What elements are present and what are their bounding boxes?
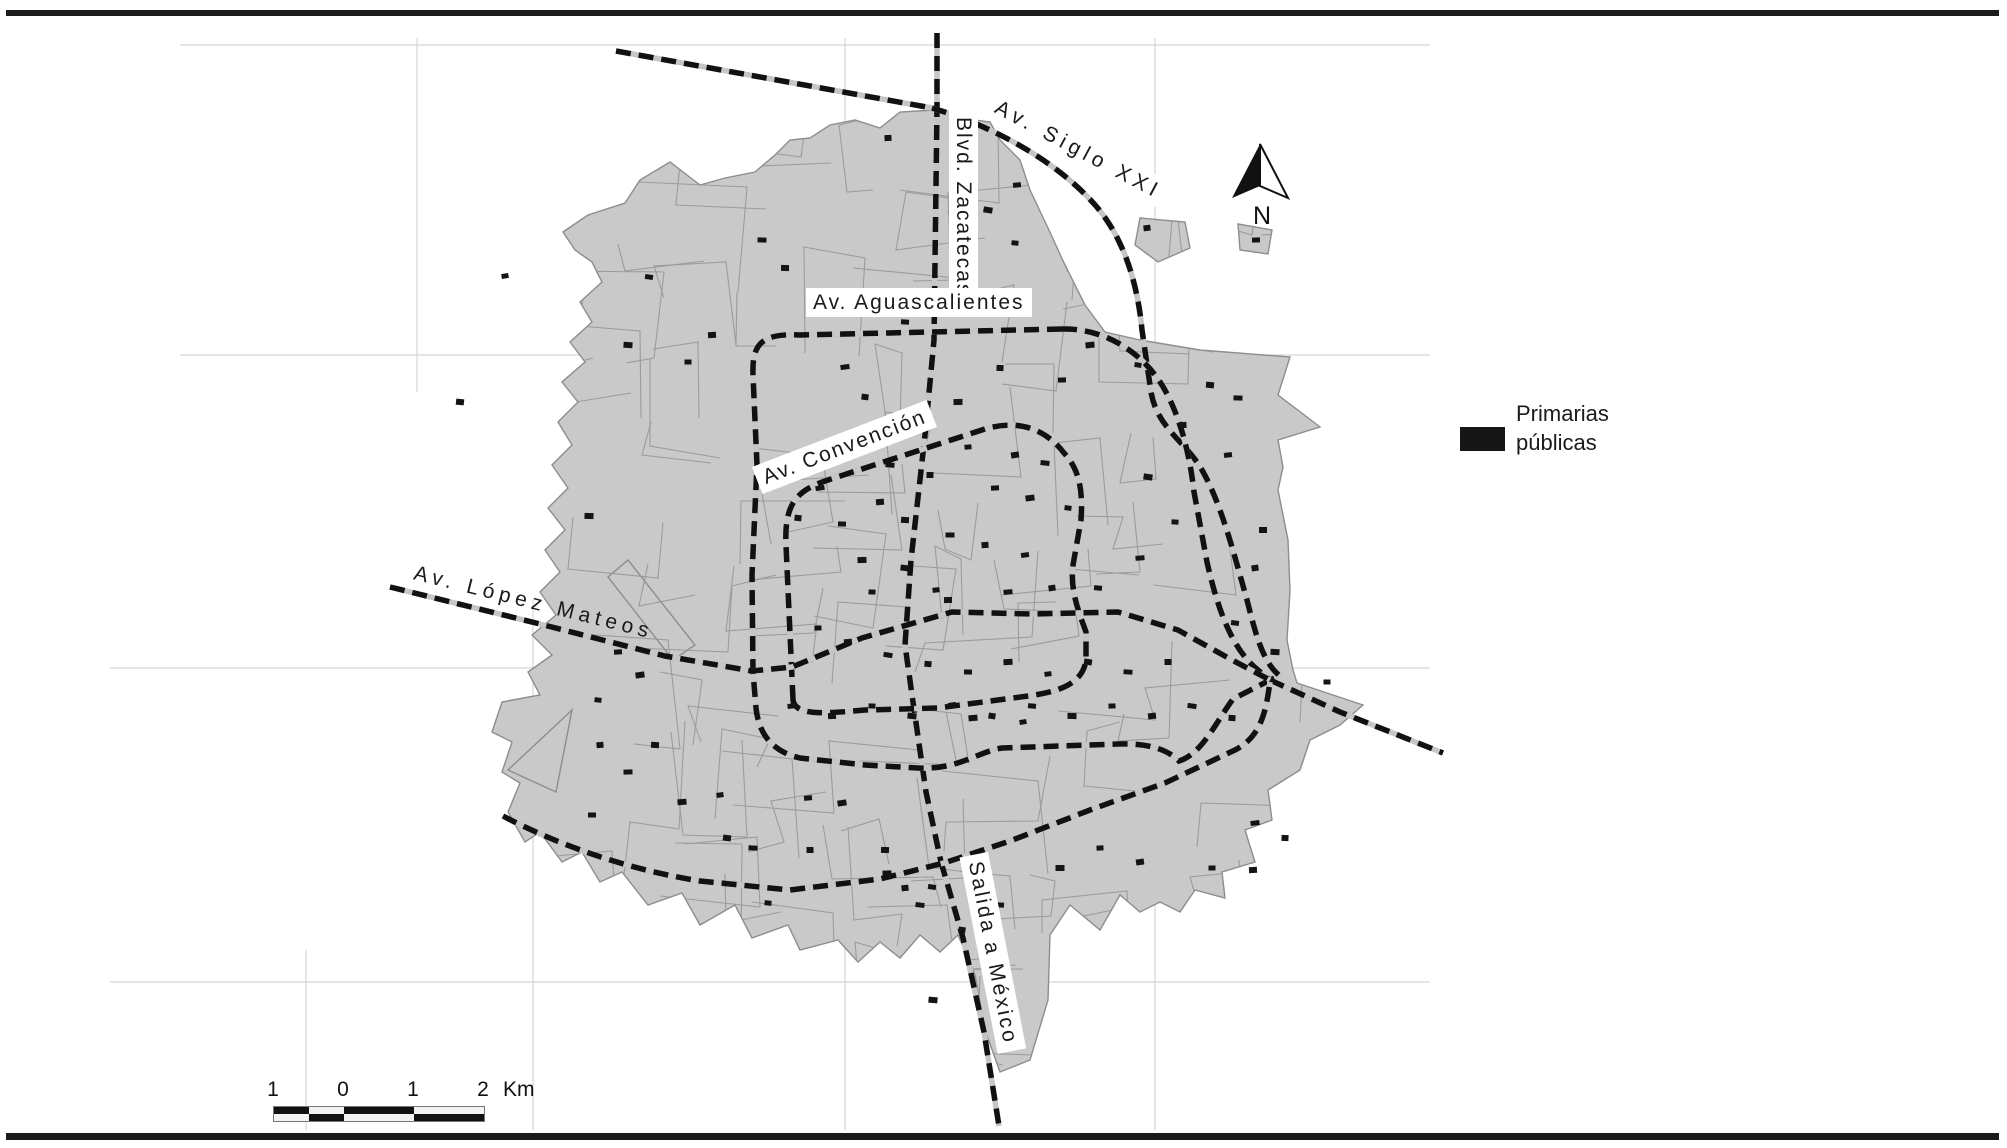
school-marker [596, 742, 603, 749]
school-marker [964, 669, 972, 674]
school-marker [1259, 527, 1267, 533]
road-label-av-aguascalientes: Av. Aguascalientes [806, 288, 1032, 317]
scale-bar-segment [344, 1107, 414, 1114]
school-marker [1003, 589, 1012, 595]
legend-label-line1: Primarias [1516, 399, 1609, 428]
school-marker [861, 394, 869, 401]
school-marker [1233, 395, 1242, 400]
school-marker [1252, 237, 1260, 242]
school-marker [884, 135, 891, 141]
school-marker [828, 713, 836, 719]
school-marker [708, 332, 716, 339]
school-marker [794, 515, 802, 522]
school-marker [651, 742, 659, 748]
school-marker [1228, 715, 1235, 721]
figure: Blvd. Zacatecas Av. Siglo XXI Av. Aguasc… [0, 0, 2007, 1148]
school-marker [814, 625, 821, 630]
school-marker [806, 847, 813, 853]
school-marker [1249, 867, 1257, 873]
scale-bar [273, 1106, 485, 1122]
school-marker [946, 533, 955, 538]
school-marker [1179, 422, 1186, 428]
school-marker [901, 319, 909, 324]
school-marker [1044, 671, 1052, 677]
school-marker [1067, 713, 1076, 719]
school-marker [588, 813, 596, 818]
school-marker [623, 769, 632, 774]
school-marker [857, 557, 866, 563]
school-marker [1058, 377, 1066, 382]
scale-bar-segment [274, 1107, 309, 1114]
school-marker [584, 513, 593, 519]
school-marker [1136, 858, 1145, 865]
urban-area-layer [492, 110, 1363, 1072]
school-marker [1281, 835, 1288, 841]
school-marker [928, 997, 937, 1004]
school-marker [991, 485, 999, 490]
school-marker [764, 900, 771, 906]
school-marker [1085, 342, 1095, 349]
school-marker [1165, 659, 1172, 665]
school-marker [900, 564, 910, 571]
school-marker [1025, 494, 1035, 501]
school-marker [614, 649, 622, 655]
school-marker [748, 845, 757, 850]
school-marker [1123, 669, 1132, 675]
school-marker [926, 472, 933, 478]
legend-swatch-primarias-publicas [1460, 427, 1505, 451]
school-marker [804, 795, 812, 801]
legend-label: Primarias públicas [1516, 399, 1609, 457]
school-marker [944, 597, 952, 603]
school-marker [924, 661, 931, 668]
school-marker [456, 399, 465, 406]
school-marker [881, 847, 889, 853]
scalebar-tick-2: 2 [468, 1078, 498, 1102]
urban-island [1135, 218, 1190, 262]
school-marker [1143, 473, 1153, 480]
school-marker [635, 671, 645, 678]
school-marker [1094, 585, 1102, 591]
school-marker [1011, 240, 1018, 246]
school-marker [1143, 225, 1151, 232]
school-marker [968, 715, 977, 722]
school-marker [1251, 565, 1259, 572]
school-marker [844, 639, 853, 646]
school-marker [882, 870, 891, 875]
school-marker [623, 342, 632, 349]
school-marker [1011, 451, 1020, 458]
school-marker [787, 703, 796, 709]
school-marker [932, 587, 939, 593]
school-marker [757, 237, 766, 242]
school-marker [981, 542, 988, 548]
scalebar-tick-1b: 1 [398, 1078, 428, 1102]
school-marker [723, 835, 732, 842]
school-marker [1108, 703, 1115, 708]
school-marker [1056, 865, 1065, 871]
school-marker [1231, 620, 1240, 626]
school-marker [1028, 703, 1036, 709]
school-marker [876, 499, 884, 506]
school-marker [1224, 452, 1233, 458]
scale-bar-segment [414, 1114, 484, 1121]
school-marker [907, 713, 917, 720]
school-marker [781, 265, 789, 271]
school-marker [838, 521, 846, 526]
school-marker [1206, 382, 1214, 389]
school-marker [868, 703, 875, 708]
school-marker [1013, 182, 1021, 188]
school-marker [677, 799, 686, 806]
school-marker [716, 792, 724, 798]
school-marker [988, 712, 996, 719]
school-marker [1270, 649, 1279, 655]
school-marker [958, 927, 966, 934]
school-marker [1003, 659, 1012, 665]
school-marker [953, 399, 962, 405]
school-marker [1208, 865, 1215, 870]
school-marker [901, 517, 909, 524]
scalebar-tick-1: 1 [258, 1078, 288, 1102]
school-marker [1135, 555, 1144, 561]
north-label: N [1222, 202, 1302, 231]
school-marker [901, 885, 909, 892]
school-marker [885, 462, 894, 468]
school-marker [1323, 679, 1330, 684]
school-marker [996, 365, 1003, 371]
school-marker [1084, 658, 1093, 665]
school-marker [1040, 460, 1049, 466]
school-marker [685, 360, 692, 365]
school-marker [1096, 845, 1103, 850]
school-marker [1064, 505, 1072, 511]
north-arrow-icon [1222, 136, 1302, 206]
scalebar-unit: Km [503, 1078, 535, 1102]
legend-label-line2: públicas [1516, 428, 1609, 457]
scalebar-tick-0: 0 [328, 1078, 358, 1102]
school-marker [1148, 713, 1157, 720]
school-marker [594, 697, 602, 703]
school-marker [964, 444, 971, 450]
school-marker [1171, 519, 1178, 524]
school-marker [868, 589, 875, 594]
scale-bar-segment [309, 1114, 344, 1121]
school-marker [501, 273, 509, 279]
road-label-blvd-zacatecas: Blvd. Zacatecas [949, 110, 978, 303]
school-marker [1048, 584, 1056, 591]
